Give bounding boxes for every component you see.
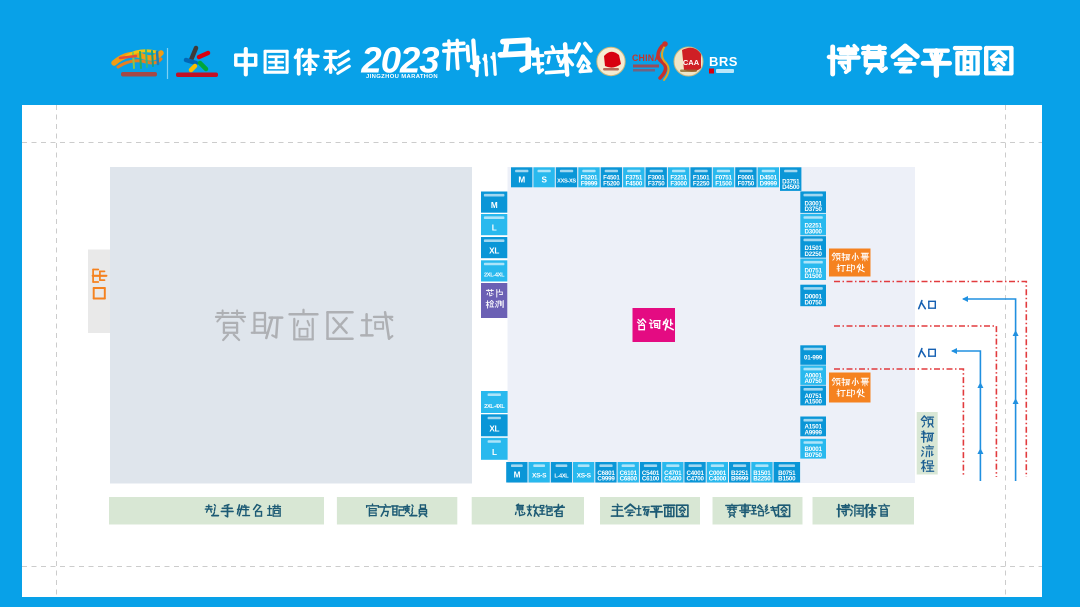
svg-text:D4500: D4500 xyxy=(782,184,800,191)
svg-text:M: M xyxy=(518,176,525,185)
svg-text:JINGZHOU MARATHON: JINGZHOU MARATHON xyxy=(366,74,438,80)
svg-text:C5400: C5400 xyxy=(664,476,682,483)
svg-text:C9999: C9999 xyxy=(597,476,615,483)
svg-text:2XL-4XL: 2XL-4XL xyxy=(484,273,505,279)
svg-text:C4000: C4000 xyxy=(709,476,727,483)
svg-text:L: L xyxy=(492,448,497,457)
svg-text:F3750: F3750 xyxy=(648,181,665,188)
svg-text:L: L xyxy=(492,223,497,232)
svg-text:XS-S: XS-S xyxy=(532,473,547,480)
svg-text:A1500: A1500 xyxy=(804,399,822,406)
svg-text:F2250: F2250 xyxy=(693,181,710,188)
svg-text:01-999: 01-999 xyxy=(804,354,823,361)
svg-text:CAA: CAA xyxy=(683,58,700,67)
svg-text:F0750: F0750 xyxy=(738,181,755,188)
svg-text:XL: XL xyxy=(489,246,499,255)
svg-text:C4700: C4700 xyxy=(686,476,704,483)
svg-text:XS-S: XS-S xyxy=(577,473,592,480)
svg-text:D0750: D0750 xyxy=(804,299,822,306)
svg-text:D2250: D2250 xyxy=(804,251,822,258)
svg-text:B1500: B1500 xyxy=(778,476,796,483)
svg-text:BRS: BRS xyxy=(709,54,738,69)
svg-text:D9999: D9999 xyxy=(760,181,778,188)
svg-text:B2250: B2250 xyxy=(753,476,771,483)
svg-text:L-4XL: L-4XL xyxy=(554,474,569,480)
svg-text:F5200: F5200 xyxy=(603,181,620,188)
svg-text:B0750: B0750 xyxy=(804,452,822,459)
svg-text:2XL-4XL: 2XL-4XL xyxy=(484,404,505,410)
svg-text:F9999: F9999 xyxy=(581,181,598,188)
svg-text:D3750: D3750 xyxy=(804,206,822,213)
svg-text:B9999: B9999 xyxy=(731,476,749,483)
svg-text:A0750: A0750 xyxy=(804,378,822,385)
svg-text:F3000: F3000 xyxy=(670,181,687,188)
svg-text:M: M xyxy=(514,471,521,480)
svg-text:C6100: C6100 xyxy=(642,476,660,483)
svg-text:XXS-XS: XXS-XS xyxy=(557,179,576,185)
svg-text:F1500: F1500 xyxy=(715,181,732,188)
svg-text:M: M xyxy=(491,201,498,210)
svg-text:C6800: C6800 xyxy=(620,476,638,483)
svg-text:F4500: F4500 xyxy=(626,181,643,188)
svg-text:S: S xyxy=(542,176,548,185)
svg-text:D1500: D1500 xyxy=(804,273,822,280)
svg-text:XL: XL xyxy=(489,425,499,434)
svg-text:A9999: A9999 xyxy=(804,430,822,437)
svg-text:D3000: D3000 xyxy=(804,229,822,236)
